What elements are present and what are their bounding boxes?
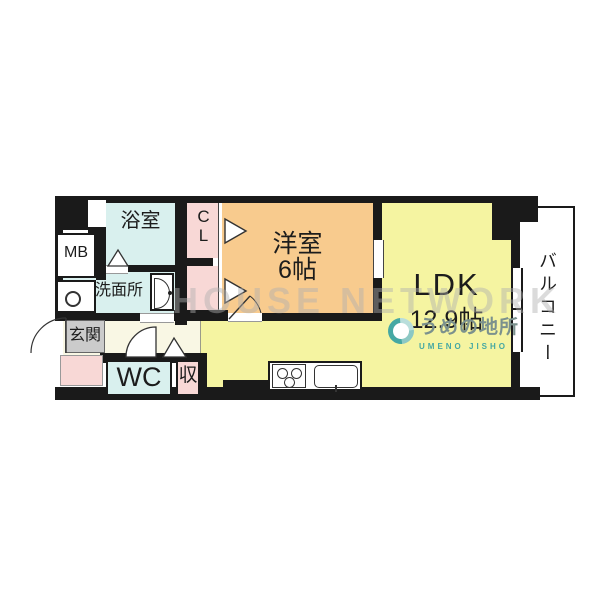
- wash-basin: [150, 273, 174, 311]
- washroom-door-opening: [140, 313, 174, 323]
- wall-segment: [223, 380, 268, 392]
- tap-icon: [335, 385, 337, 392]
- meter-box-label: MB: [56, 245, 96, 262]
- western-room-label: 洋室 6帖: [222, 231, 373, 284]
- closet-label: C L: [187, 208, 220, 245]
- western-room-name: 洋室: [272, 230, 322, 258]
- bathroom-label: 浴室: [106, 211, 175, 232]
- wall-segment: [520, 196, 538, 222]
- agency-name-en: UMENO JISHO: [419, 342, 519, 351]
- entrance-label: 玄関: [65, 328, 105, 345]
- watermark-text: HOUSE NETWORK: [172, 280, 561, 322]
- washroom-label: 洗面所: [88, 283, 150, 300]
- wall-segment: [128, 265, 175, 272]
- entrance-door-arc-icon: [31, 318, 66, 353]
- agency-logo: うめの地所 UMENO JISHO: [388, 318, 519, 351]
- stove-icon: [272, 364, 306, 388]
- drain-icon: [65, 291, 81, 307]
- pipe-space: [88, 200, 106, 227]
- wall-segment: [55, 196, 538, 203]
- room-ldk-passage: [200, 318, 207, 353]
- agency-logo-text: うめの地所 UMENO JISHO: [419, 318, 519, 351]
- entrance-side-closet: [60, 355, 103, 386]
- storage-label: 収: [176, 366, 200, 386]
- floor-plan: 浴室 C L 洋室 6帖 LDK 12.9帖 洗面所 玄関 WC 収 MB バル…: [0, 0, 600, 600]
- wc-label: WC: [106, 363, 172, 391]
- wall-segment: [373, 203, 382, 240]
- bathroom-door-opening: [106, 265, 128, 274]
- wall-segment: [187, 258, 213, 266]
- wall-segment: [492, 196, 520, 240]
- burner-icon: [284, 377, 295, 388]
